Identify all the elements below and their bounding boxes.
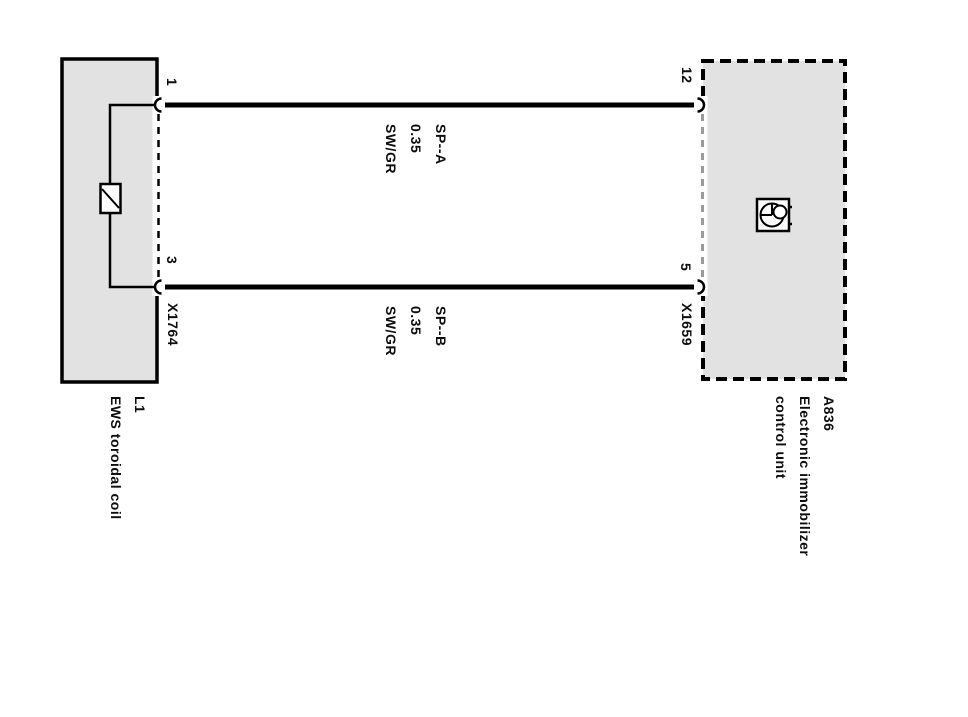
component-designator: L1: [128, 396, 152, 520]
left-connector-face-gap: [153, 96, 162, 296]
left-component-label: L1 EWS toroidal coil: [104, 396, 152, 520]
wire-cross-section: 0.35: [403, 124, 428, 174]
pin-label-right-top: 12: [679, 67, 695, 84]
wire-cross-section: 0.35: [403, 306, 428, 356]
pin-label-right-bottom: 5: [678, 263, 694, 271]
wire-circuit: SP--B: [428, 306, 453, 356]
control-unit-icon: [757, 199, 792, 231]
wire-label-sp-b: SP--B 0.35 SW/GR: [378, 306, 453, 356]
component-name-line-2: control unit: [769, 396, 793, 556]
connector-label-x1659: X1659: [679, 303, 695, 346]
wire-color-code: SW/GR: [378, 306, 403, 356]
wiring-diagram: 1 3 12 5 X1764 X1659 SP--A 0.35 SW/GR SP…: [0, 0, 968, 717]
wire-color-code: SW/GR: [378, 124, 403, 174]
diagram-graphics: [0, 0, 968, 717]
component-name: EWS toroidal coil: [104, 396, 128, 520]
right-component-label: A836 Electronic immobilizer control unit: [769, 396, 841, 556]
connector-label-x1764: X1764: [165, 303, 181, 346]
pin-label-left-top: 1: [164, 78, 180, 86]
wire-label-sp-a: SP--A 0.35 SW/GR: [378, 124, 453, 174]
wire-circuit: SP--A: [428, 124, 453, 174]
pin-label-left-bottom: 3: [164, 256, 180, 264]
component-designator: A836: [817, 396, 841, 556]
component-name-line-1: Electronic immobilizer: [793, 396, 817, 556]
